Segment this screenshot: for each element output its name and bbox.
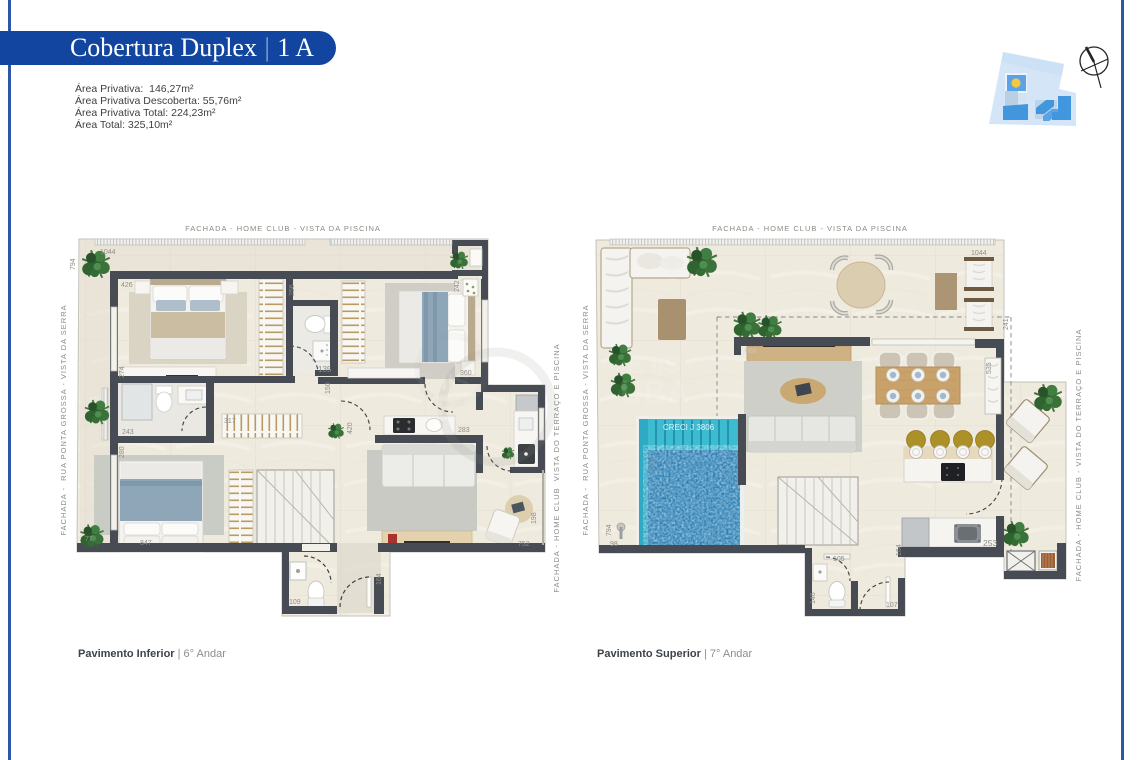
svg-text:CRECI J 3806: CRECI J 3806 (663, 423, 715, 432)
svg-text:535: 535 (986, 362, 993, 374)
svg-text:242: 242 (454, 280, 461, 292)
svg-text:243: 243 (122, 429, 134, 436)
svg-text:296: 296 (649, 458, 656, 470)
svg-text:105: 105 (833, 556, 845, 563)
svg-text:109: 109 (289, 599, 301, 606)
svg-text:FACHADA - HOME CLUB VISTA DO: FACHADA - HOME CLUB VISTA DO TERRAÇO E P… (552, 343, 561, 592)
svg-text:FACHADA - HOME CLUB - VISTA DA: FACHADA - HOME CLUB - VISTA DA PISCINA (712, 224, 908, 233)
svg-text:241: 241 (1003, 318, 1010, 330)
svg-text:164: 164 (376, 573, 383, 585)
svg-text:426: 426 (121, 282, 133, 289)
svg-text:150: 150 (325, 382, 332, 394)
svg-text:256: 256 (289, 284, 296, 296)
svg-text:UBA: UBA (620, 374, 689, 410)
svg-text:98: 98 (610, 541, 618, 548)
svg-text:280: 280 (119, 446, 126, 458)
svg-text:FACHADA - HOME CLUB - VISTA DA: FACHADA - HOME CLUB - VISTA DA PISCINA (185, 224, 381, 233)
svg-text:794: 794 (70, 258, 77, 270)
svg-text:OBA: OBA (410, 391, 481, 427)
svg-text:FACHADA - RUA PONTA GROSSA -: FACHADA - RUA PONTA GROSSA - VISTA DA SE… (59, 304, 68, 535)
svg-text:198: 198 (531, 512, 538, 524)
svg-text:77: 77 (85, 536, 93, 543)
svg-text:107: 107 (886, 602, 898, 609)
svg-text:253: 253 (983, 538, 997, 548)
svg-text:666: 666 (745, 348, 757, 355)
svg-text:317: 317 (224, 418, 236, 425)
svg-text:135: 135 (318, 365, 332, 374)
svg-text:1044: 1044 (100, 249, 116, 256)
svg-text:752: 752 (518, 541, 530, 548)
svg-text:794: 794 (606, 524, 613, 536)
svg-text:FACHADA - RUA PONTA GROSSA -: FACHADA - RUA PONTA GROSSA - VISTA DA SE… (581, 304, 590, 535)
svg-text:283: 283 (458, 427, 470, 434)
svg-text:420: 420 (347, 422, 354, 434)
svg-text:274: 274 (119, 366, 126, 378)
svg-text:164: 164 (896, 544, 903, 556)
svg-text:FACHADA - HOME CLUB - VISTA DO: FACHADA - HOME CLUB - VISTA DO TERRAÇO E… (1074, 329, 1083, 582)
svg-text:146: 146 (810, 592, 817, 604)
svg-text:847: 847 (140, 540, 152, 547)
svg-text:1044: 1044 (971, 250, 987, 257)
